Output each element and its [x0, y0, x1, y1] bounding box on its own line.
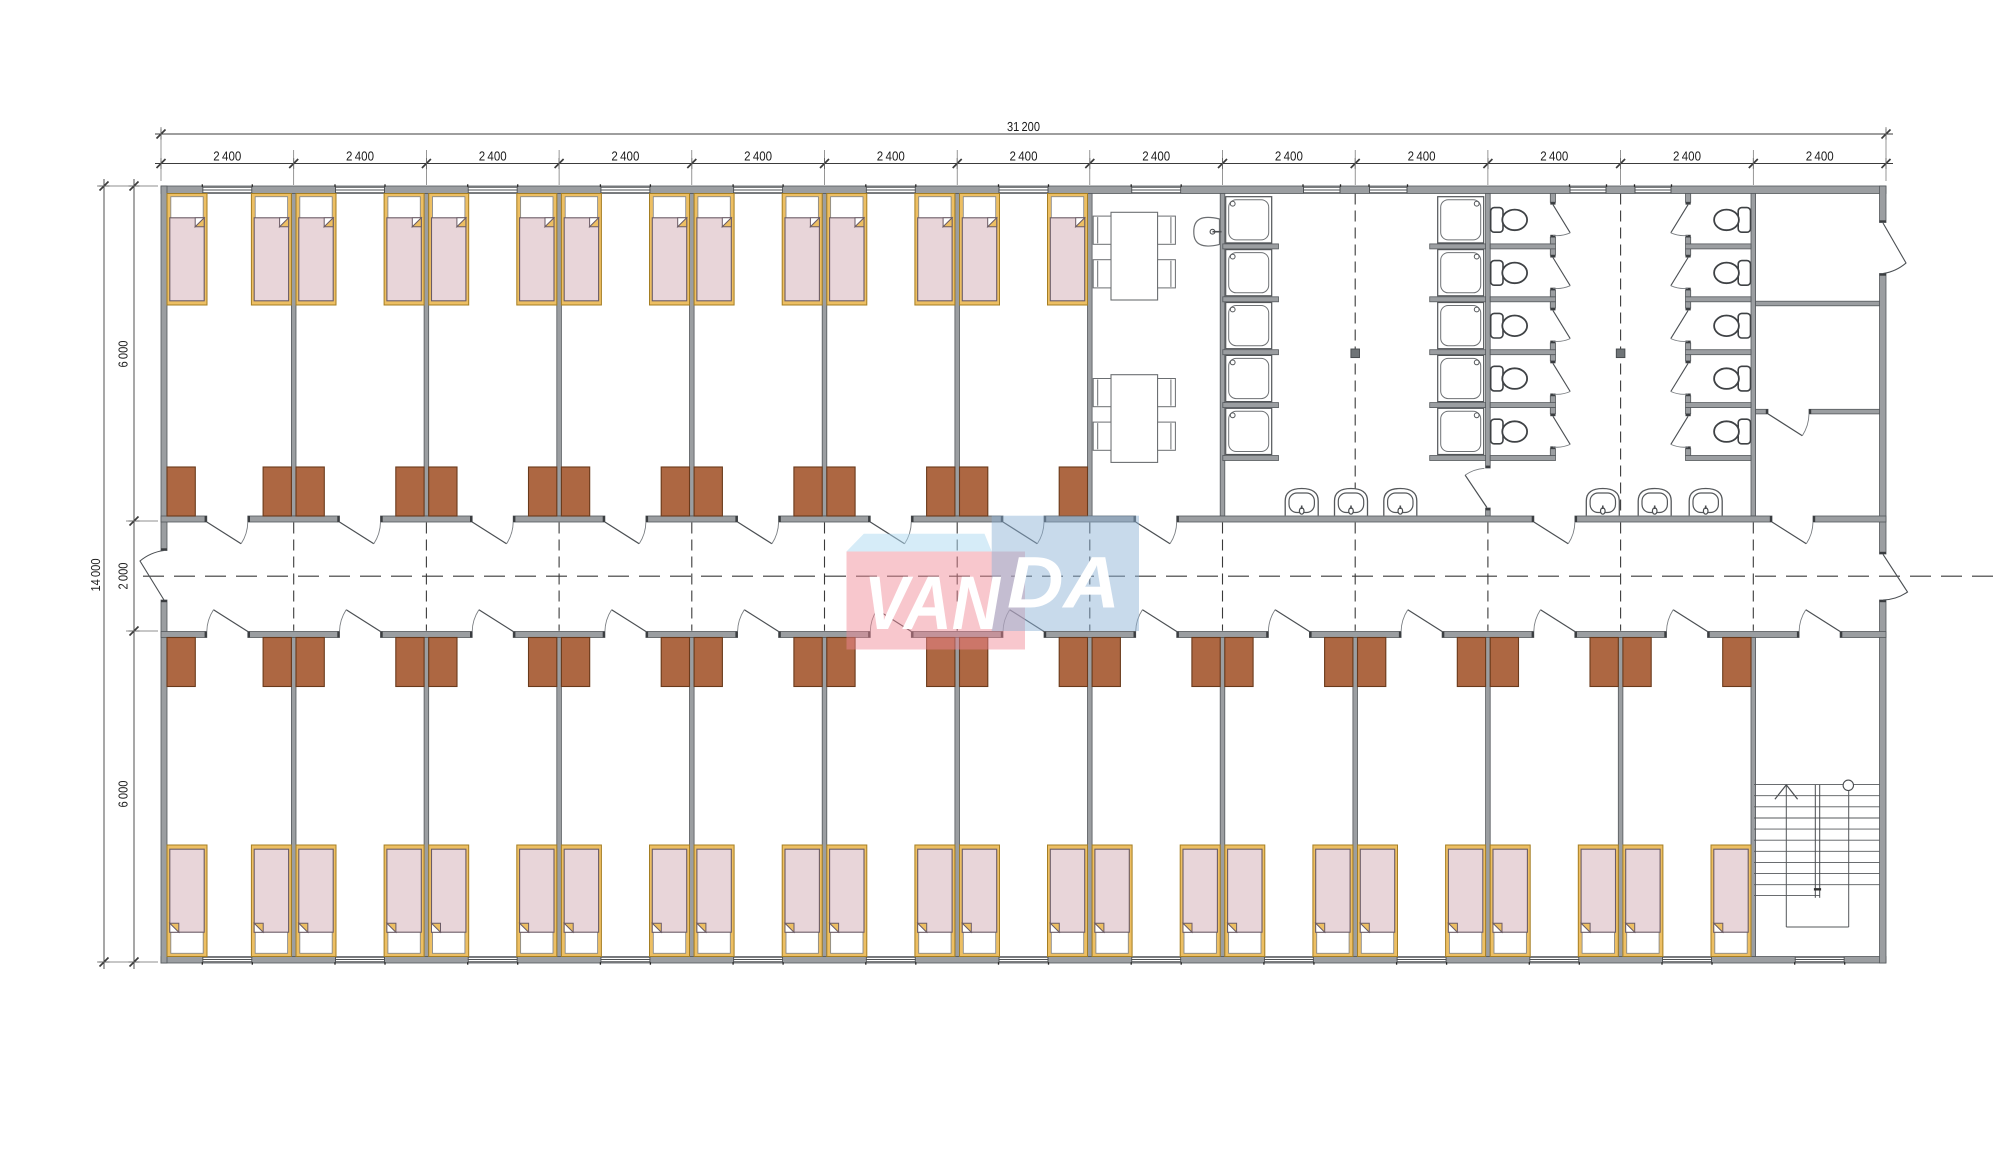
svg-text:6 000: 6 000	[116, 341, 131, 368]
svg-text:2 400: 2 400	[346, 149, 374, 164]
svg-text:2 400: 2 400	[1806, 149, 1834, 164]
svg-text:DA: DA	[1007, 543, 1120, 624]
svg-text:2 400: 2 400	[1142, 149, 1170, 164]
svg-text:2 400: 2 400	[213, 149, 241, 164]
svg-text:2 400: 2 400	[877, 149, 905, 164]
svg-text:31 200: 31 200	[1007, 119, 1040, 134]
svg-text:2 400: 2 400	[1673, 149, 1701, 164]
svg-text:2 000: 2 000	[116, 563, 131, 590]
svg-text:VAN: VAN	[864, 561, 1002, 646]
svg-text:6 000: 6 000	[116, 781, 131, 808]
svg-text:2 400: 2 400	[1275, 149, 1303, 164]
svg-text:2 400: 2 400	[1540, 149, 1568, 164]
svg-text:2 400: 2 400	[744, 149, 772, 164]
svg-text:14 000: 14 000	[88, 559, 103, 592]
svg-text:2 400: 2 400	[1010, 149, 1038, 164]
svg-text:2 400: 2 400	[1408, 149, 1436, 164]
svg-text:2 400: 2 400	[479, 149, 507, 164]
svg-text:2 400: 2 400	[611, 149, 639, 164]
